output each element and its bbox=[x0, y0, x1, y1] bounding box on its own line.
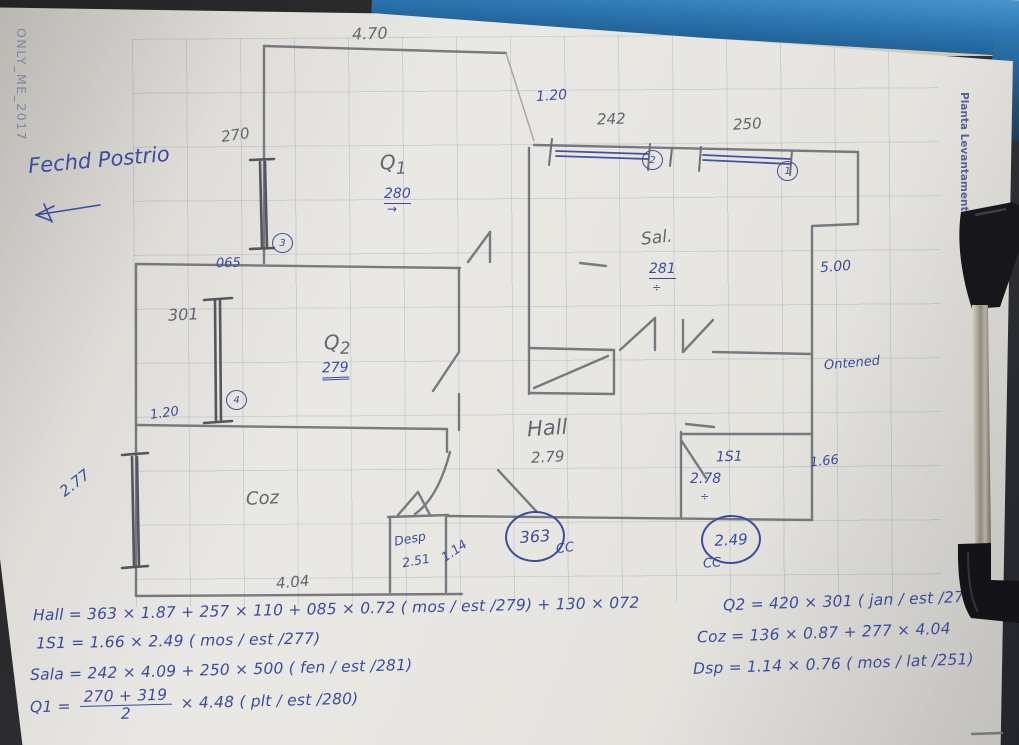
divide-mark-is1: ÷ bbox=[700, 490, 709, 503]
room-q1-label: Q1 bbox=[380, 150, 407, 179]
window-tag-2: 2 bbox=[642, 150, 663, 170]
room-q1-sub: 1 bbox=[396, 159, 407, 178]
dim-top-470: 4.70 bbox=[352, 23, 388, 43]
room-q2-label: Q2 bbox=[324, 330, 351, 359]
room-hall-label: Hall bbox=[526, 415, 568, 442]
equation-q1-fraction: 270 + 319 2 bbox=[79, 687, 172, 724]
dim-window1-250: 250 bbox=[733, 114, 763, 133]
window-tag-3: 3 bbox=[272, 233, 293, 253]
divide-mark-sala: ÷ bbox=[652, 281, 661, 294]
dim-coz-404: 4.04 bbox=[275, 572, 310, 593]
dim-window2-242: 242 bbox=[597, 110, 626, 129]
room-sala-label: Sal. bbox=[640, 226, 673, 249]
room-q2-letter: Q bbox=[324, 330, 341, 355]
height-q2-279: 279 bbox=[322, 360, 349, 381]
height-is1-278: 2.78 bbox=[690, 471, 721, 487]
photo-of-floorplan-sketch: ONLY_ME_2017 Planta Levantamento Fechd P… bbox=[0, 0, 1019, 745]
height-hall-279: 2.79 bbox=[531, 447, 565, 467]
room-is1-label: 1S1 bbox=[716, 449, 743, 466]
equation-q1-denominator: 2 bbox=[121, 706, 131, 723]
equation-q1-lhs: Q1 = bbox=[30, 698, 71, 717]
room-q2-sub: 2 bbox=[340, 339, 351, 358]
dim-166: 1.66 bbox=[809, 453, 839, 471]
dim-120-top: 1.20 bbox=[535, 87, 567, 105]
dim-ledge-065: 065 bbox=[216, 256, 241, 272]
arrow-under-280: → bbox=[387, 202, 397, 216]
dim-right-500: 5.00 bbox=[819, 258, 851, 276]
watermark-planta-levantamento: Planta Levantamento bbox=[958, 92, 970, 219]
window-tag-1: 1 bbox=[777, 161, 798, 181]
room-q1-letter: Q bbox=[380, 150, 397, 175]
equation-q1-rhs: × 4.48 ( plt / est /280) bbox=[180, 690, 358, 713]
window-tag-4: 4 bbox=[226, 390, 247, 410]
watermark-only-me: ONLY_ME_2017 bbox=[14, 28, 29, 141]
room-coz-label: Coz bbox=[245, 487, 279, 510]
height-sala-281: 281 bbox=[649, 261, 676, 279]
dim-window4-301: 301 bbox=[168, 304, 199, 325]
